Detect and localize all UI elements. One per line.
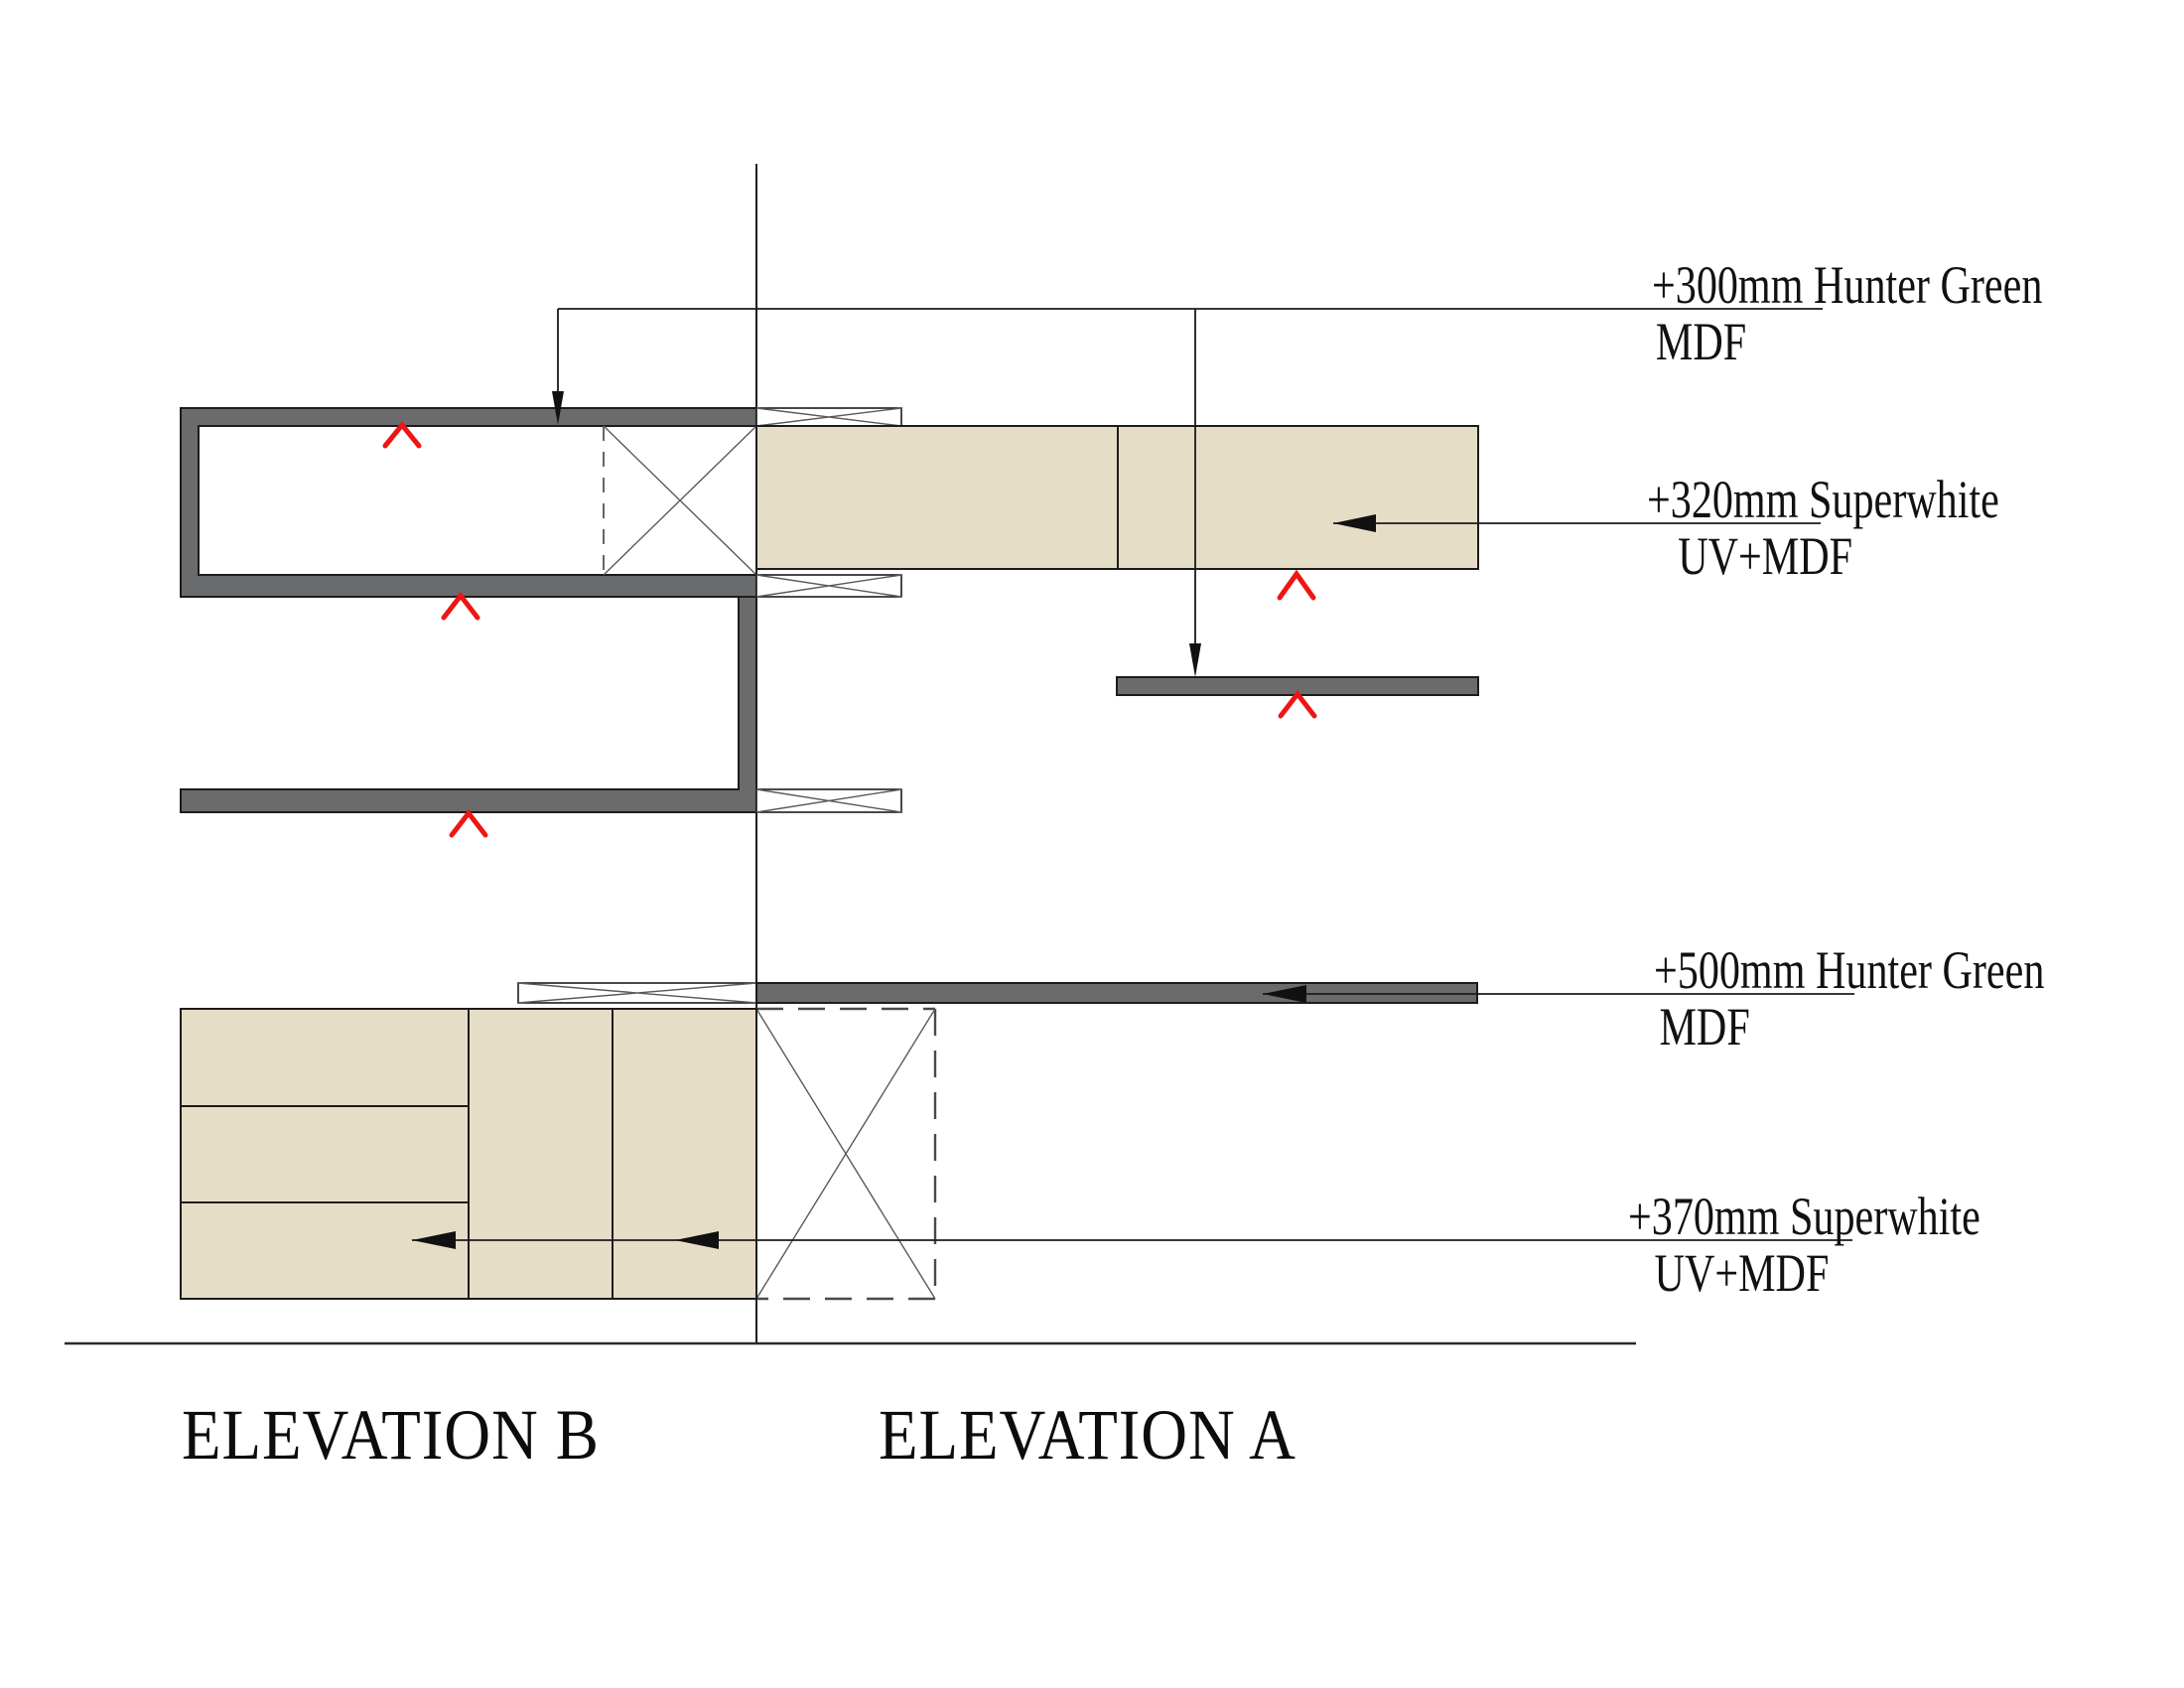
- annotation-line1: +370mm Superwhite: [1628, 1187, 1980, 1246]
- chevron-mark: [1280, 574, 1313, 598]
- hidden-cabinet-dashed-box: [756, 1009, 935, 1299]
- title-elevation-b: ELEVATION B: [182, 1398, 600, 1472]
- hunter-green-counter: [756, 983, 1477, 1003]
- chevron-mark: [385, 425, 419, 446]
- annotation-line2: MDF: [1652, 314, 2042, 370]
- annotation-500mm-hunter-green: +500mm Hunter Green MDF: [1654, 942, 2044, 1055]
- section-cross-box-upper: [604, 426, 756, 575]
- chevron-mark: [444, 596, 478, 618]
- elevation-a-panels: [756, 426, 1478, 1299]
- elevation-drawing-sheet: +300mm Hunter Green MDF +320mm Superwhit…: [0, 0, 2184, 1688]
- annotation-line2: UV+MDF: [1647, 528, 1999, 585]
- title-elevation-a: ELEVATION A: [879, 1398, 1297, 1472]
- annotation-line1: +320mm Superwhite: [1647, 470, 1999, 529]
- chevron-mark: [1281, 694, 1314, 716]
- shelf-c-profile-top: [181, 408, 756, 597]
- annotation-line1: +300mm Hunter Green: [1652, 255, 2042, 315]
- hatch-strip-top: [756, 408, 901, 426]
- hatch-strip-counter-left: [518, 983, 756, 1003]
- shelf-c-profile-bottom: [181, 597, 756, 812]
- chevron-mark: [452, 813, 485, 835]
- hatch-strip-lower: [756, 789, 901, 812]
- annotation-370mm-superwhite: +370mm Superwhite UV+MDF: [1628, 1189, 1980, 1302]
- annotation-320mm-superwhite: +320mm Superwhite UV+MDF: [1647, 472, 1999, 585]
- elevation-b-upper-shelf-unit: [181, 408, 756, 812]
- elevation-b-base-cabinet: [181, 1009, 756, 1299]
- hatch-strip-middle: [756, 575, 901, 597]
- annotation-line2: MDF: [1654, 999, 2044, 1055]
- annotation-line1: +500mm Hunter Green: [1654, 940, 2044, 1000]
- annotation-line2: UV+MDF: [1628, 1245, 1980, 1302]
- annotation-300mm-hunter-green: +300mm Hunter Green MDF: [1652, 257, 2042, 370]
